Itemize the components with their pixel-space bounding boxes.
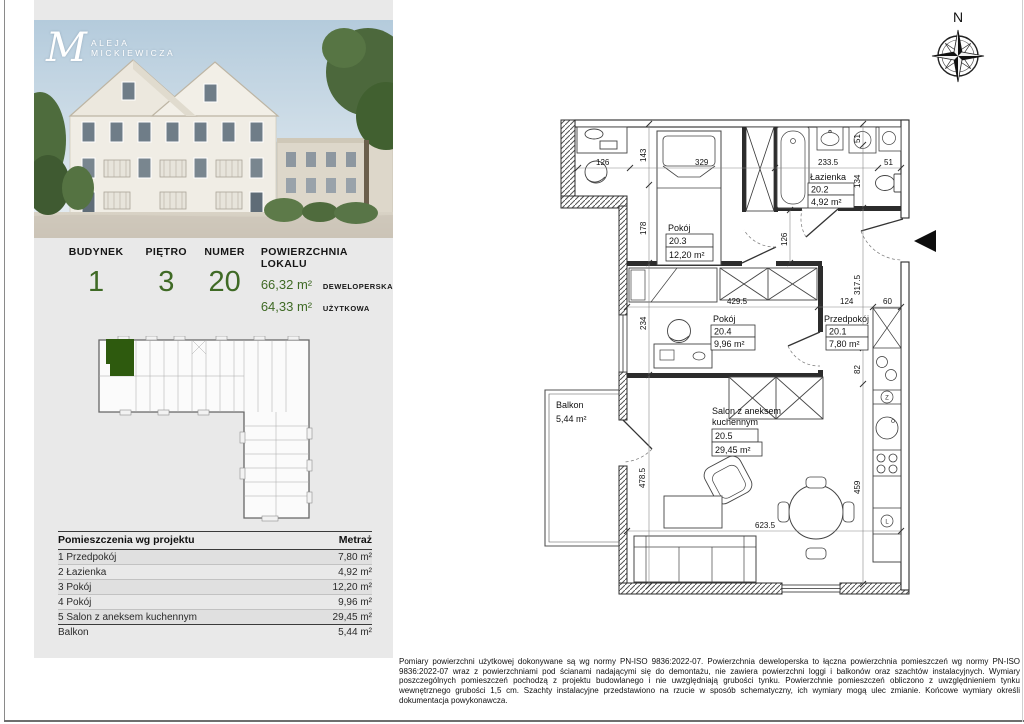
area-uzytkowa-type: UŻYTKOWA [323, 304, 370, 313]
compass-icon: N [932, 9, 984, 82]
room-name: 2 Łazienka [58, 565, 303, 580]
door-leaf-bathroom [806, 209, 838, 237]
room-area: 4,92 m² [303, 565, 372, 580]
svg-text:143: 143 [639, 148, 648, 162]
coffee-table-icon [664, 496, 722, 528]
numer-label: NUMER [196, 242, 253, 258]
svg-text:5,44 m²: 5,44 m² [556, 414, 587, 424]
compass-north-label: N [953, 9, 963, 25]
room-name: 5 Salon z aneksem kuchennym [58, 610, 303, 625]
logo-monogram: M [46, 28, 87, 68]
svg-text:126: 126 [780, 232, 789, 246]
svg-text:Z: Z [885, 396, 889, 402]
room-name: 3 Pokój [58, 580, 303, 595]
svg-text:20.3: 20.3 [669, 236, 687, 246]
table-row: 3 Pokój 12,20 m² [58, 580, 372, 595]
room-area: 12,20 m² [303, 580, 372, 595]
svg-text:4,92 m²: 4,92 m² [811, 197, 842, 207]
balcony-label: Balkon 5,44 m² [556, 400, 587, 424]
svg-text:60: 60 [883, 297, 892, 306]
room-label-20-1: Przedpokój 20.1 7,80 m² [824, 314, 869, 350]
svg-text:178: 178 [639, 221, 648, 235]
budynek-value: 1 [56, 266, 136, 299]
room-area: 29,45 m² [303, 610, 372, 625]
desk-chair-icon [668, 320, 691, 343]
area-deweloperska-type: DEWELOPERSKA [323, 282, 393, 291]
exterior-walls [561, 120, 909, 594]
wardrobe-icon [720, 268, 817, 300]
building-photo: M ALEJA MICKIEWICZA [34, 20, 393, 238]
building-outline-plan [96, 336, 316, 522]
area-uzytkowa-value: 64,33 m² [261, 299, 323, 314]
table-row: 4 Pokój 9,96 m² [58, 595, 372, 610]
numer-value: 20 [196, 266, 253, 299]
svg-text:51: 51 [853, 134, 862, 143]
svg-text:329: 329 [695, 158, 709, 167]
svg-text:234: 234 [639, 316, 648, 330]
budynek-label: BUDYNEK [56, 242, 136, 258]
kitchen-counter: Z L [873, 308, 901, 562]
svg-text:51: 51 [884, 158, 893, 167]
page-border-bottom [4, 720, 1024, 722]
room-name: 1 Przedpokój [58, 550, 303, 565]
svg-text:20.5: 20.5 [715, 431, 733, 441]
door-leaf-balcony [623, 420, 652, 449]
svg-text:Pokój: Pokój [668, 223, 691, 233]
svg-text:29,45 m²: 29,45 m² [715, 445, 751, 455]
svg-text:Pokój: Pokój [713, 314, 736, 324]
offer-page: M ALEJA MICKIEWICZA BUDYNEK 1 PIĘTRO 3 N… [0, 0, 1024, 724]
room-label-20-4: Pokój 20.4 9,96 m² [711, 314, 755, 350]
svg-text:20.1: 20.1 [829, 327, 847, 337]
svg-text:Przedpokój: Przedpokój [824, 314, 869, 324]
toilet-icon [876, 176, 895, 191]
svg-text:Balkon: Balkon [556, 400, 584, 410]
table-row: Balkon 5,44 m² [58, 625, 372, 640]
svg-text:20.2: 20.2 [811, 185, 829, 195]
room-area: 9,96 m² [303, 595, 372, 610]
table-header-rooms: Pomieszczenia wg projektu [58, 532, 303, 550]
svg-text:478.5: 478.5 [638, 467, 647, 488]
svg-text:623.5: 623.5 [755, 521, 776, 530]
svg-text:317.5: 317.5 [853, 274, 862, 295]
logo: M ALEJA MICKIEWICZA [46, 28, 175, 68]
door-leaf-room4 [788, 332, 820, 346]
dining-table-icon [778, 477, 854, 559]
oven-icon [877, 357, 888, 368]
svg-text:124: 124 [840, 297, 854, 306]
svg-text:429.5: 429.5 [727, 297, 748, 306]
left-panel: M ALEJA MICKIEWICZA BUDYNEK 1 PIĘTRO 3 N… [34, 0, 393, 658]
entrance-arrow-icon [914, 230, 936, 252]
kitchen-sink-icon [876, 417, 898, 439]
room-area: 5,44 m² [303, 625, 372, 640]
svg-text:Salon z aneksem: Salon z aneksem [712, 406, 781, 416]
svg-text:Łazienka: Łazienka [810, 172, 846, 182]
table-row: 1 Przedpokój 7,80 m² [58, 550, 372, 565]
table-header-area: Metraż [303, 532, 372, 550]
table-row: 2 Łazienka 4,92 m² [58, 565, 372, 580]
svg-text:82: 82 [853, 365, 862, 374]
powierzchnia-label: POWIERZCHNIA LOKALU [261, 242, 393, 270]
svg-text:459: 459 [853, 480, 862, 494]
page-border-left [4, 0, 5, 722]
room-name: 4 Pokój [58, 595, 303, 610]
door-leaf-bedroom [742, 247, 776, 263]
svg-text:kuchennym: kuchennym [712, 417, 758, 427]
pietro-value: 3 [136, 266, 196, 299]
installation-shaft [746, 127, 774, 211]
door-leaf-entrance [861, 219, 903, 231]
logo-line1: ALEJA [91, 38, 175, 48]
room-area: 7,80 m² [303, 550, 372, 565]
svg-text:20.4: 20.4 [714, 327, 732, 337]
area-deweloperska-value: 66,32 m² [261, 277, 323, 292]
svg-text:9,96 m²: 9,96 m² [714, 339, 745, 349]
room-label-20-2: Łazienka 20.2 4,92 m² [808, 172, 854, 208]
room-name: Balkon [58, 625, 303, 640]
logo-line2: MICKIEWICZA [91, 48, 175, 58]
pietro-label: PIĘTRO [136, 242, 196, 258]
svg-text:233.5: 233.5 [818, 158, 839, 167]
rooms-table: Pomieszczenia wg projektu Metraż 1 Przed… [58, 531, 372, 639]
svg-text:126: 126 [596, 158, 610, 167]
apartment-info-row: BUDYNEK 1 PIĘTRO 3 NUMER 20 POWIERZCHNIA… [34, 242, 393, 314]
table-row: 5 Salon z aneksem kuchennym 29,45 m² [58, 610, 372, 625]
room-label-20-5: Salon z aneksem kuchennym 20.5 29,45 m² [712, 406, 781, 456]
svg-text:7,80 m²: 7,80 m² [829, 339, 860, 349]
sofa-icon [634, 536, 756, 582]
highlighted-unit [106, 339, 134, 376]
svg-text:12,20 m²: 12,20 m² [669, 250, 705, 260]
disclaimer-text: Pomiary powierzchni użytkowej dokonywane… [399, 657, 1020, 706]
floor-plan: Z L 126 [400, 0, 1024, 658]
